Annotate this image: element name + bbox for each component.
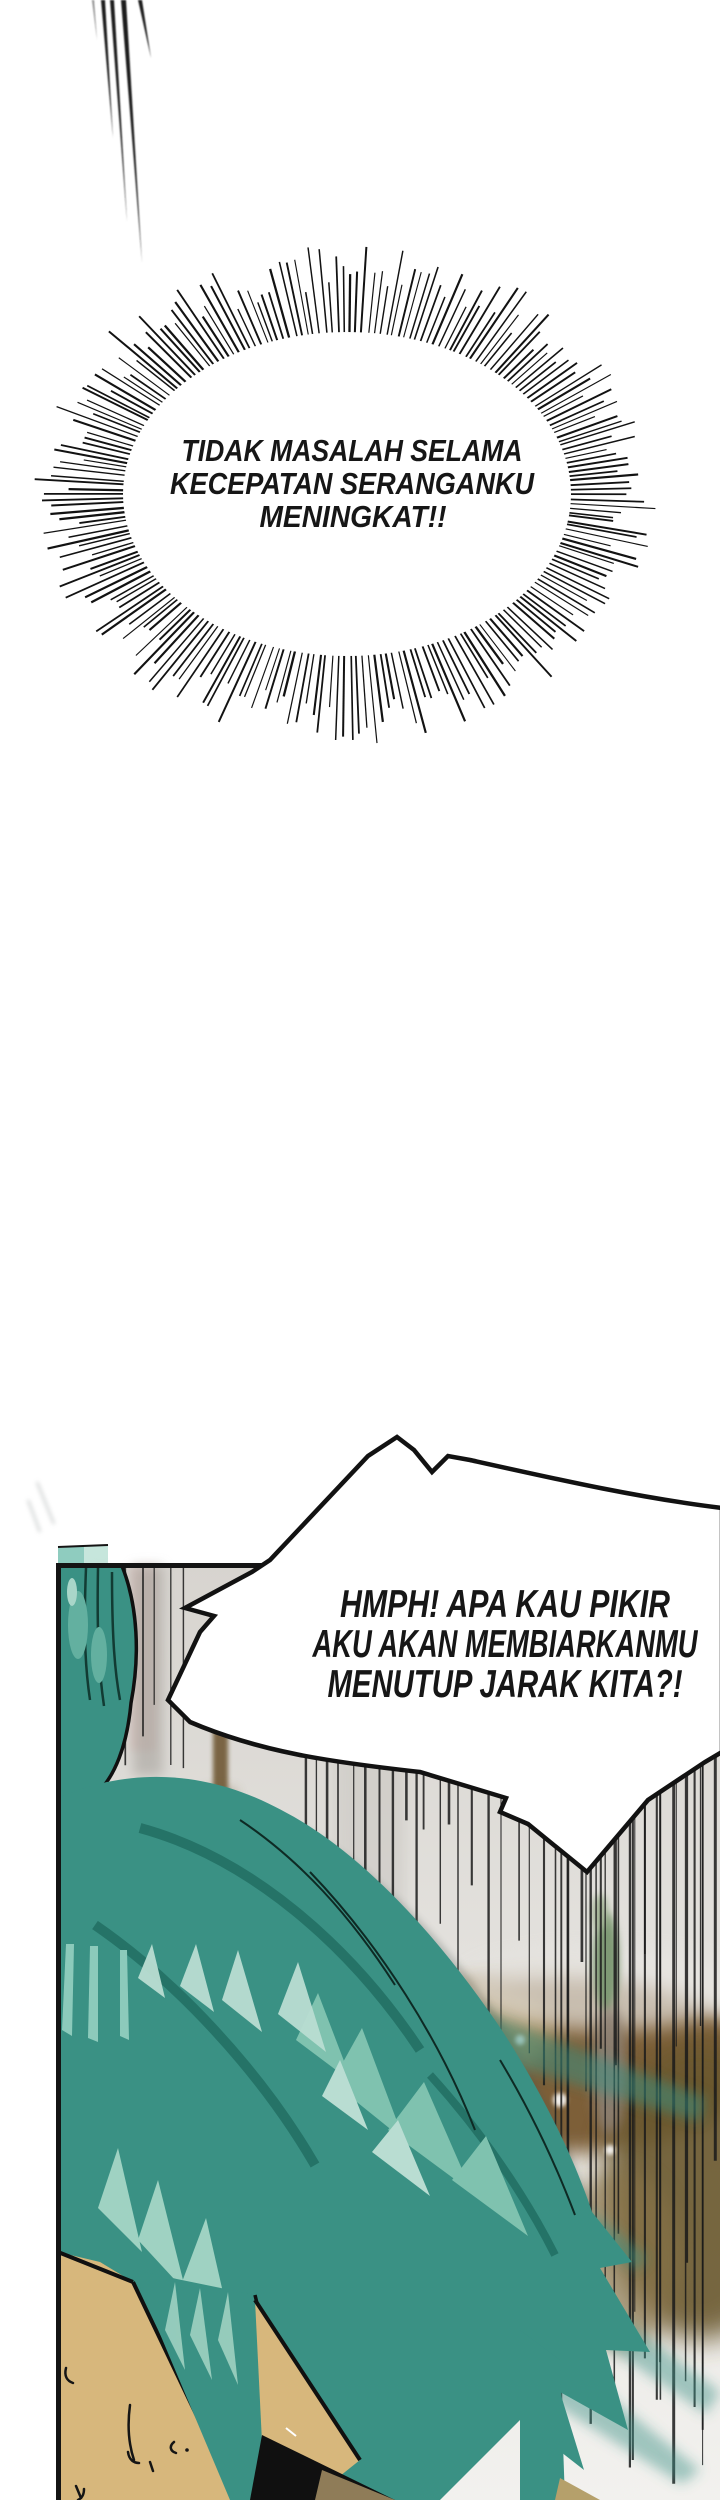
speed-line [101, 0, 113, 138]
burst-text-line-2: KECEPATAN SERANGANKU [170, 466, 535, 501]
speed-line [138, 0, 151, 58]
burst-bubble: TIDAK MASALAH SELAMA KECEPATAN SERANGANK… [35, 247, 656, 743]
speed-line [92, 0, 97, 40]
burst-text-line-3: MENINGKAT!! [260, 499, 447, 534]
shout-text-line-2: AKU AKAN MEMBIARKANMU [312, 1623, 698, 1666]
burst-text-line-1: TIDAK MASALAH SELAMA [182, 433, 523, 468]
top-speed-lines [92, 0, 151, 263]
panel-corner-wisps [28, 1482, 54, 1532]
comic-artwork: TIDAK MASALAH SELAMA KECEPATAN SERANGANK… [0, 0, 720, 2500]
comic-page: TIDAK MASALAH SELAMA KECEPATAN SERANGANK… [0, 0, 720, 2500]
shout-text-line-3: MENUTUP JARAK KITA?! [328, 1663, 683, 1706]
speed-line [121, 0, 142, 263]
hair-tuft-above-panel [58, 1545, 108, 1563]
shout-text-line-1: HMPH! APA KAU PIKIR [340, 1583, 670, 1626]
